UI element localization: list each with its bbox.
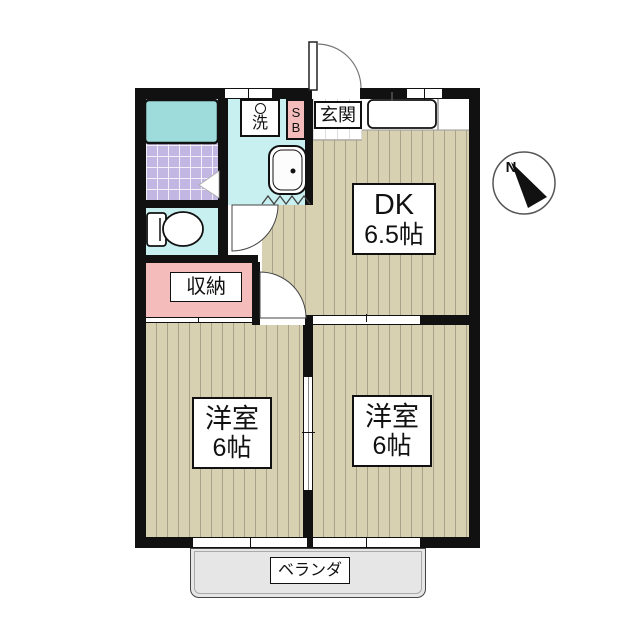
- shoebox-label: SB: [289, 105, 304, 135]
- washing-machine: 洗: [240, 99, 280, 137]
- bathtub: [145, 100, 218, 143]
- shoebox: SB: [286, 99, 306, 140]
- storage-label-box: 収納: [170, 272, 242, 302]
- room-left-door-swing: [260, 272, 306, 318]
- room-right-name: 洋室: [365, 402, 419, 432]
- sink-drain: [291, 169, 296, 174]
- entrance-door-leaf: [309, 42, 317, 90]
- room-left-name: 洋室: [205, 404, 259, 434]
- dk-size: 6.5帖: [364, 221, 424, 249]
- compass-north-label: N: [506, 159, 517, 176]
- kitchen-sink: [368, 100, 436, 128]
- fixtures-layer: N: [0, 0, 640, 640]
- washroom-sink-basin: [273, 150, 302, 190]
- dk-name: DK: [374, 189, 414, 221]
- veranda-label-box: ベランダ: [270, 557, 350, 584]
- washroom-door-swing: [232, 205, 278, 251]
- washer-label: 洗: [242, 114, 278, 133]
- accordion-door: [262, 196, 310, 204]
- room-left-label-box: 洋室 6帖: [192, 397, 272, 469]
- veranda-label: ベランダ: [278, 562, 342, 580]
- entrance-label-box: 玄関: [314, 101, 362, 129]
- washer-dial-icon: [255, 103, 266, 114]
- storage-label: 収納: [186, 276, 226, 298]
- entrance-door-arc: [317, 44, 361, 88]
- bath-door-marker: [199, 171, 219, 198]
- toilet-bowl: [163, 212, 203, 246]
- room-left-size: 6帖: [213, 434, 252, 462]
- room-right-label-box: 洋室 6帖: [352, 395, 432, 467]
- floor-plan: N 洗 SB 玄関 DK 6.5帖 収納 洋室 6帖 洋室 6帖 ベランダ: [0, 0, 640, 640]
- room-right-size: 6帖: [373, 432, 412, 460]
- dk-label-box: DK 6.5帖: [352, 183, 436, 255]
- entrance-label: 玄関: [320, 105, 356, 125]
